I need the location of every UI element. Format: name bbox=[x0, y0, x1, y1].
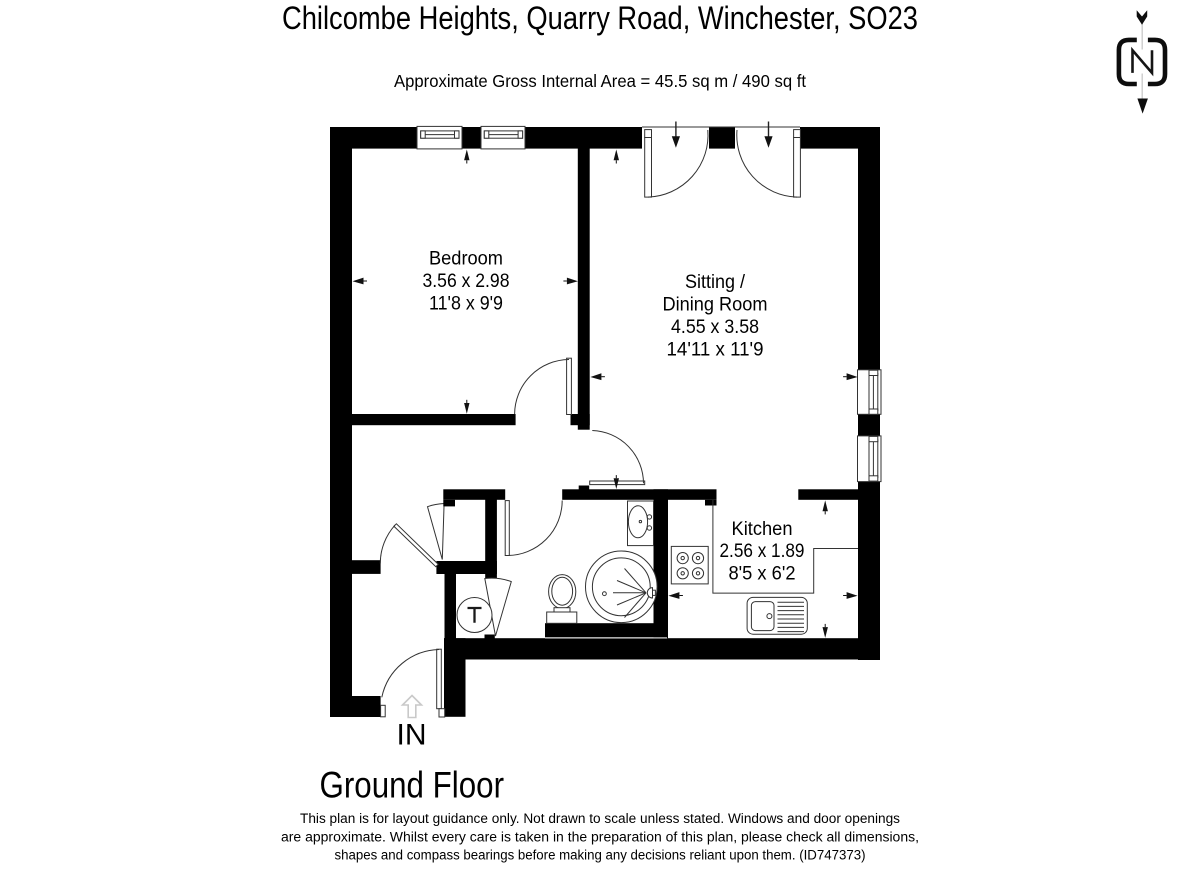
svg-text:2.56 x 1.89: 2.56 x 1.89 bbox=[720, 541, 805, 562]
svg-text:4.55 x 3.58: 4.55 x 3.58 bbox=[671, 317, 759, 338]
svg-text:are approximate. Whilst every: are approximate. Whilst every care is ta… bbox=[281, 829, 919, 844]
svg-text:This plan is for layout guidan: This plan is for layout guidance only. N… bbox=[300, 811, 900, 826]
svg-text:shapes and compass bearings be: shapes and compass bearings before makin… bbox=[335, 848, 866, 863]
svg-text:Approximate Gross Internal Are: Approximate Gross Internal Area = 45.5 s… bbox=[394, 71, 806, 91]
svg-text:Kitchen: Kitchen bbox=[732, 519, 793, 540]
svg-text:Dining Room: Dining Room bbox=[663, 294, 768, 315]
svg-text:Bedroom: Bedroom bbox=[429, 249, 503, 270]
svg-text:Ground Floor: Ground Floor bbox=[320, 765, 505, 806]
svg-text:14'11 x 11'9: 14'11 x 11'9 bbox=[667, 339, 764, 360]
svg-text:8'5 x 6'2: 8'5 x 6'2 bbox=[729, 564, 796, 585]
svg-text:3.56 x 2.98: 3.56 x 2.98 bbox=[423, 271, 510, 292]
svg-text:IN: IN bbox=[397, 719, 427, 752]
svg-text:Sitting /: Sitting / bbox=[685, 272, 746, 293]
svg-text:11'8 x 9'9: 11'8 x 9'9 bbox=[429, 293, 503, 314]
svg-text:Chilcombe Heights, Quarry Road: Chilcombe Heights, Quarry Road, Winchest… bbox=[282, 0, 918, 36]
